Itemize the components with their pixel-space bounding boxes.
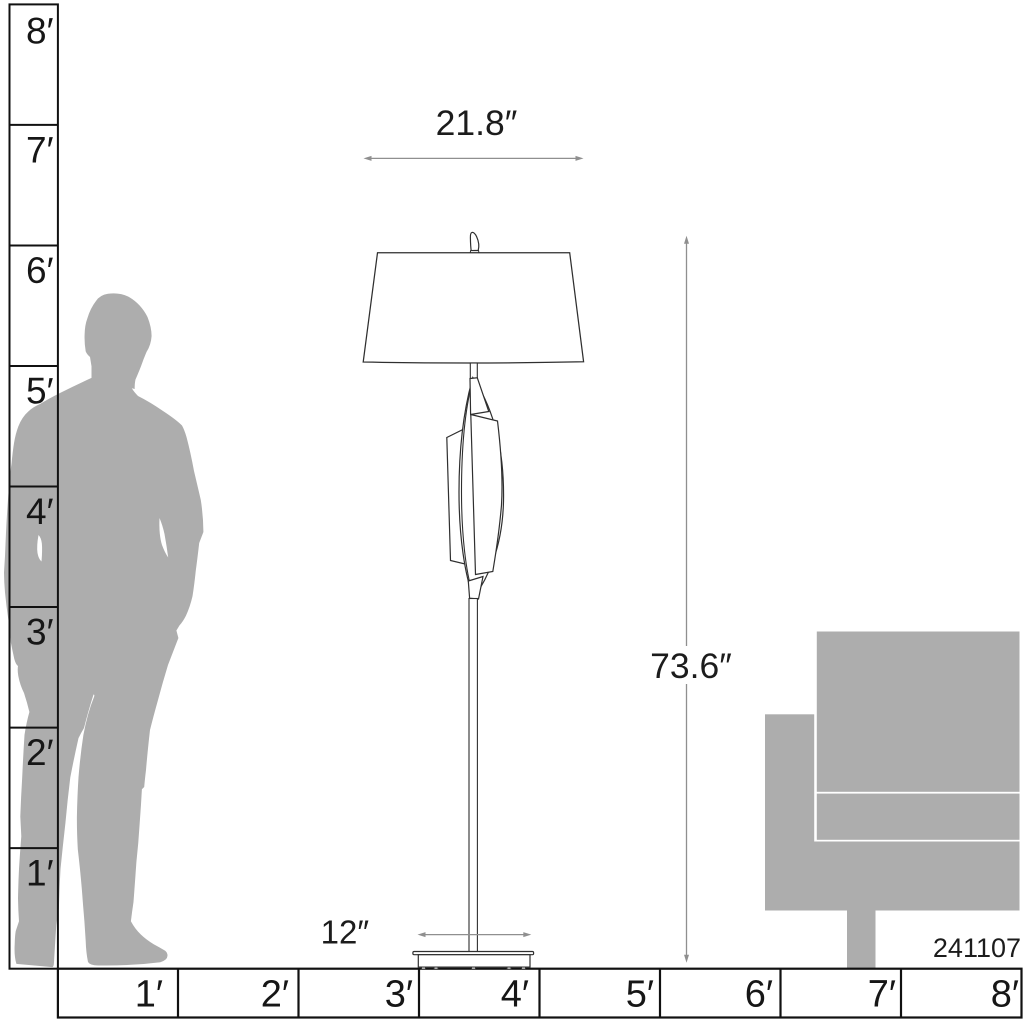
svg-text:7′: 7′ bbox=[868, 974, 896, 1016]
svg-text:241107: 241107 bbox=[933, 933, 1021, 963]
svg-text:4′: 4′ bbox=[501, 974, 529, 1016]
svg-text:6′: 6′ bbox=[26, 250, 54, 291]
svg-text:7′: 7′ bbox=[26, 129, 54, 170]
svg-text:8′: 8′ bbox=[991, 974, 1019, 1016]
svg-text:21.8″: 21.8″ bbox=[436, 103, 518, 143]
svg-text:4′: 4′ bbox=[26, 491, 54, 532]
svg-text:8′: 8′ bbox=[26, 11, 54, 52]
svg-text:12″: 12″ bbox=[321, 914, 370, 951]
svg-text:2′: 2′ bbox=[26, 732, 54, 773]
svg-text:2′: 2′ bbox=[261, 974, 289, 1016]
svg-text:3′: 3′ bbox=[385, 974, 413, 1016]
svg-text:6′: 6′ bbox=[745, 974, 773, 1016]
svg-text:5′: 5′ bbox=[626, 974, 654, 1016]
svg-text:3′: 3′ bbox=[26, 612, 54, 653]
svg-text:1′: 1′ bbox=[135, 974, 163, 1016]
svg-text:5′: 5′ bbox=[26, 371, 54, 412]
svg-text:73.6″: 73.6″ bbox=[650, 646, 732, 686]
svg-text:1′: 1′ bbox=[26, 853, 54, 894]
